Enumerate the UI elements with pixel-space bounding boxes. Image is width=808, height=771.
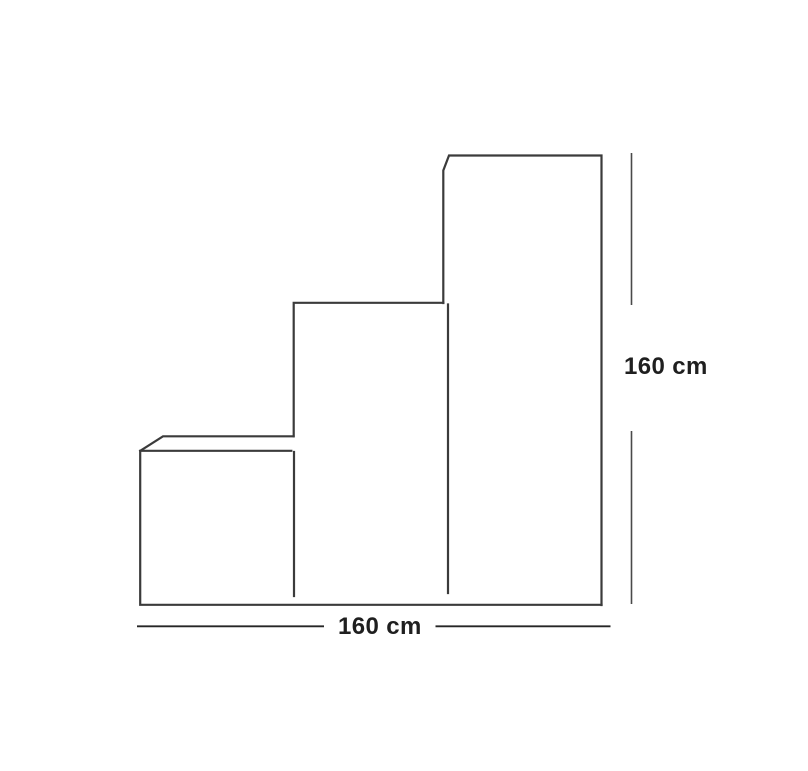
svg-text:160 cm: 160 cm	[624, 353, 708, 380]
svg-text:160 cm: 160 cm	[338, 613, 422, 640]
